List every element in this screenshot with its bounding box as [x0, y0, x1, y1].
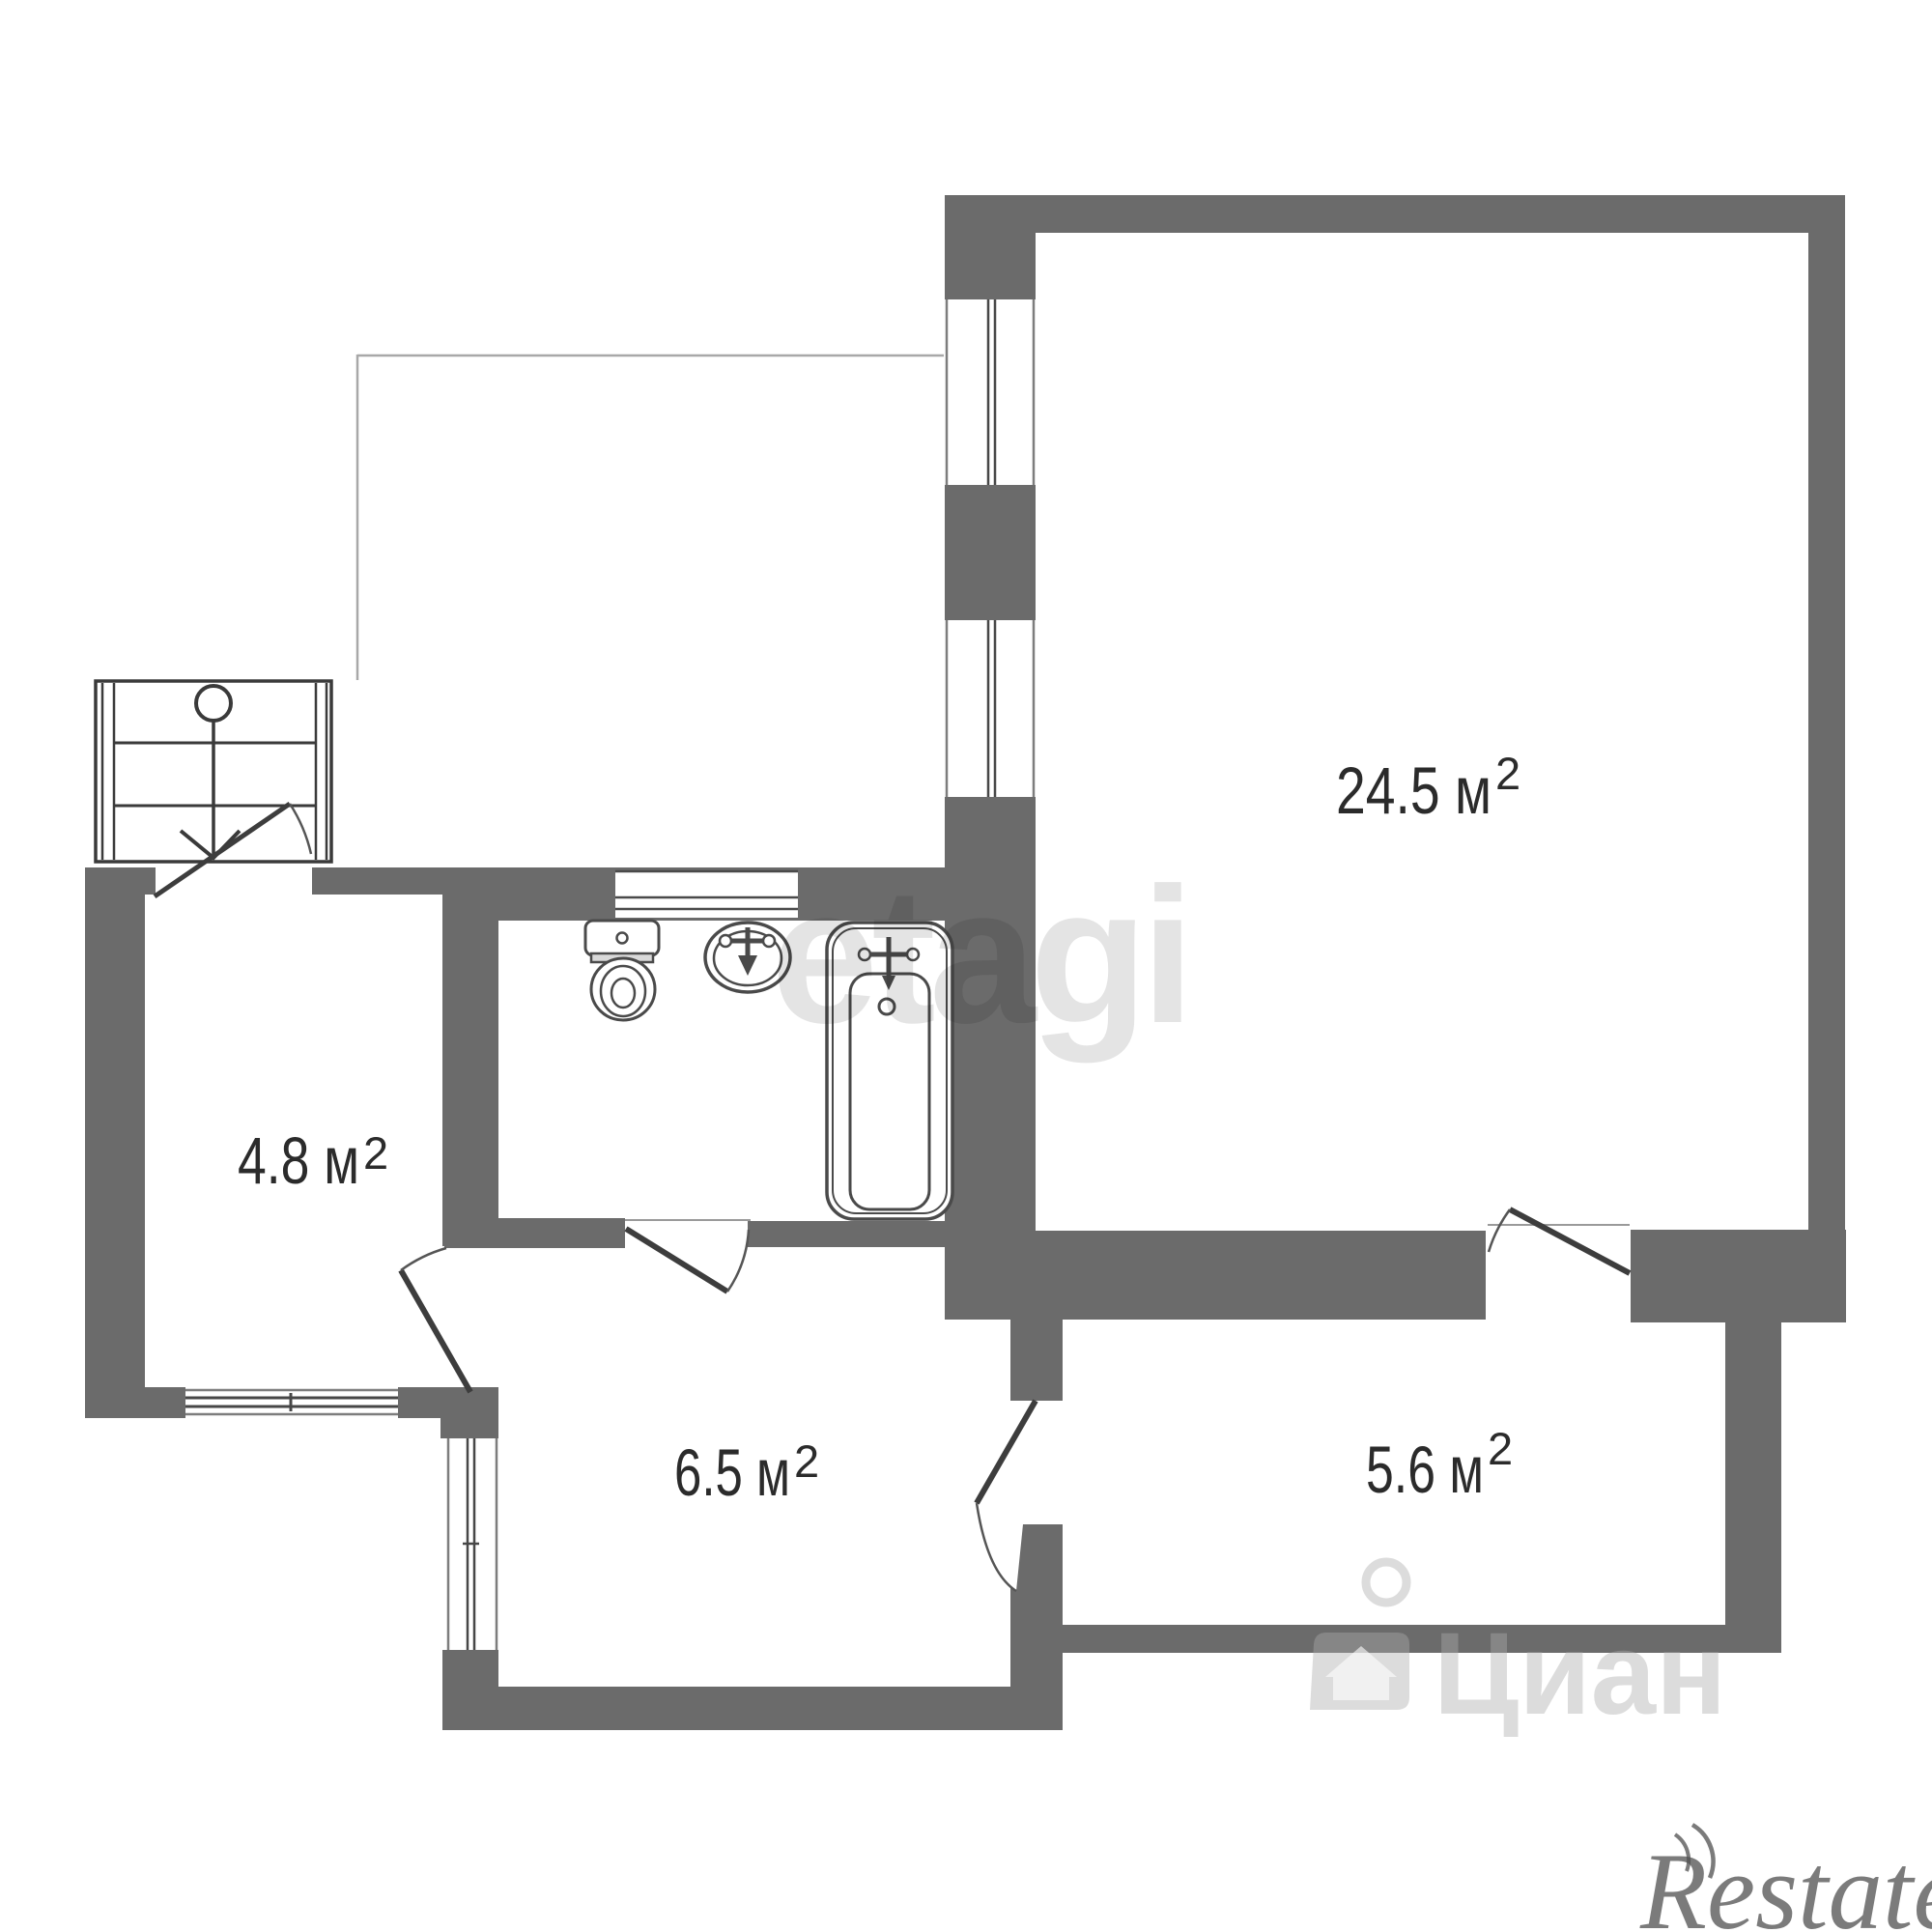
svg-text:5.6 м: 5.6 м — [1366, 1433, 1484, 1507]
svg-text:2: 2 — [1495, 748, 1520, 799]
svg-text:2: 2 — [363, 1127, 388, 1179]
svg-text:2: 2 — [794, 1435, 819, 1487]
svg-text:etagi: etagi — [771, 848, 1188, 1064]
svg-text:4.8 м: 4.8 м — [238, 1123, 359, 1198]
svg-text:Restate: Restate — [1639, 1832, 1932, 1932]
svg-text:6.5 м: 6.5 м — [674, 1435, 790, 1510]
svg-text:24.5 м: 24.5 м — [1336, 753, 1492, 828]
svg-text:Циан: Циан — [1434, 1607, 1726, 1739]
svg-text:2: 2 — [1488, 1423, 1513, 1474]
